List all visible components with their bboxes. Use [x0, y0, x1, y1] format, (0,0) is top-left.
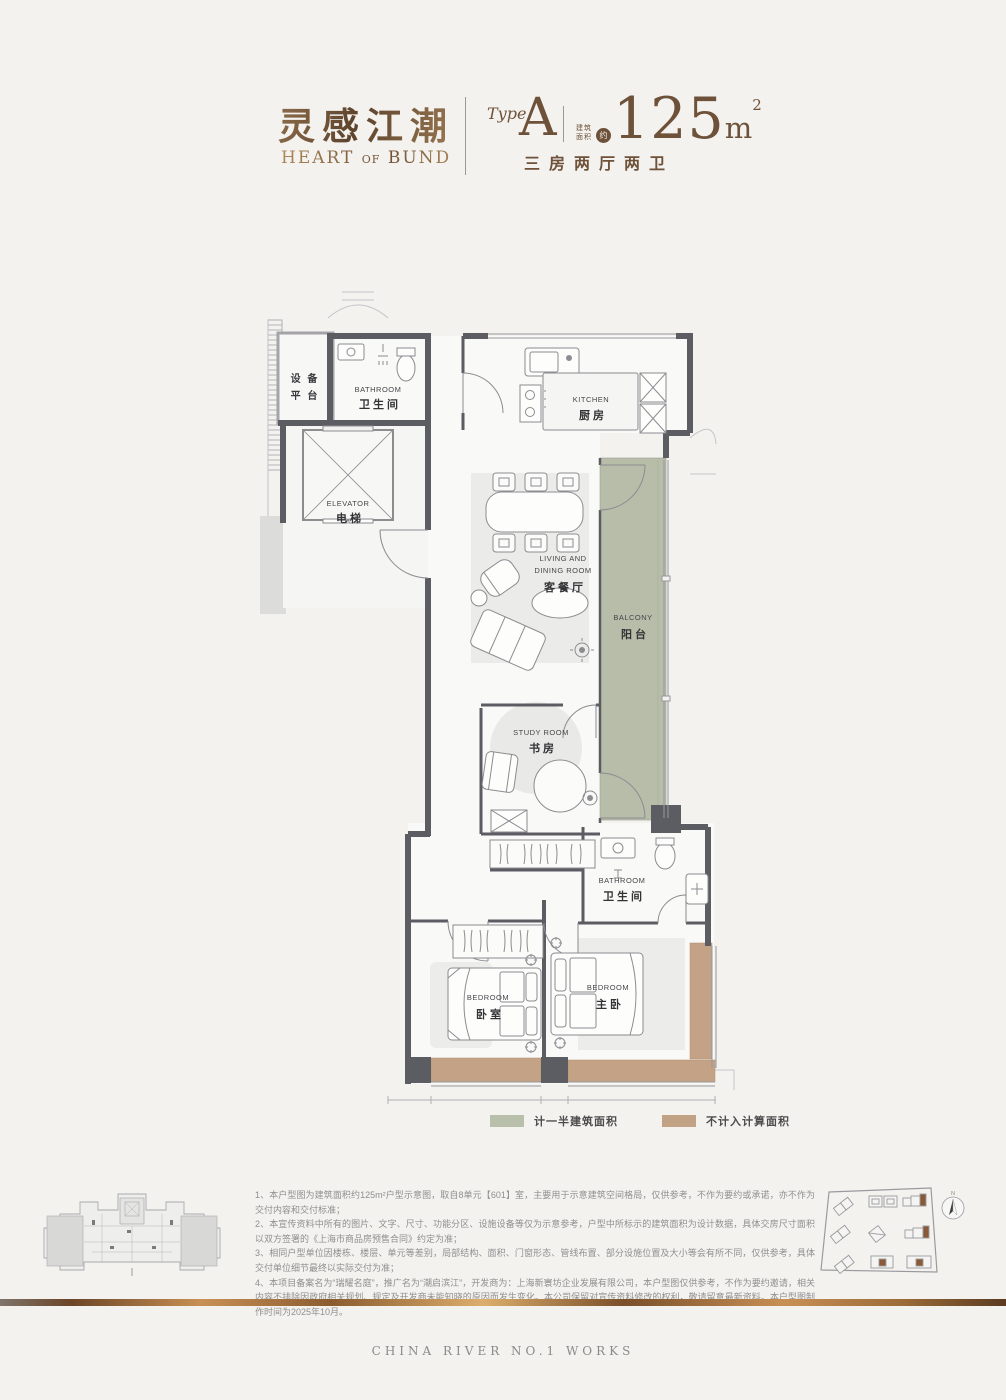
bronze-divider-strip [0, 1299, 1006, 1306]
label-kitchen-zh: 厨房 [579, 408, 607, 422]
legend-swatch-green [490, 1115, 524, 1127]
key-plan [32, 1180, 232, 1286]
area-divider [563, 106, 564, 142]
label-bathroom2-zh: 卫生间 [603, 889, 645, 903]
area-prefix: 建筑面积 [576, 124, 592, 142]
label-bathroom1-en: BATHROOM [355, 385, 402, 394]
compass-north-label: N [951, 1191, 955, 1197]
label-living-en1: LIVING AND [539, 554, 586, 563]
legend-swatch-tan [662, 1115, 696, 1127]
label-study-en: STUDY ROOM [513, 728, 569, 737]
header: 灵感江潮 HEART OF BUND Type A 建筑面积 约 125m2 三… [0, 0, 1006, 220]
site-plan: N [813, 1184, 973, 1290]
footer-slogan: CHINA RIVER NO.1 WORKS [0, 1344, 1006, 1358]
legend: 计一半建筑面积 不计入计算面积 [490, 1113, 790, 1129]
layout-spec: 三房两厅两卫 [524, 150, 674, 174]
label-bathroom1-zh: 卫生间 [359, 397, 401, 411]
floor-plan: 设 备 平 台 BATHROOM 卫生间 KITCHEN 厨房 ELEVATOR… [238, 278, 768, 1118]
label-living-zh: 客餐厅 [543, 580, 586, 594]
label-kitchen-en: KITCHEN [573, 395, 609, 404]
page-subtitle: HEART OF BUND [281, 148, 451, 168]
label-master-zh: 主卧 [596, 997, 624, 1011]
label-elevator-zh: 电梯 [336, 511, 364, 525]
site-buildings [830, 1194, 931, 1273]
header-divider [465, 97, 466, 175]
note-1: 1、本户型图为建筑面积约125m²户型示意图，取自8单元【601】室，主要用于示… [255, 1188, 815, 1217]
area-value: 125m2 [613, 86, 762, 152]
legend-half-area: 计一半建筑面积 [490, 1113, 618, 1129]
note-2: 2、本宣传资料中所有的图片、文字、尺寸、功能分区、设施设备等仅为示意参考，户型中… [255, 1217, 815, 1246]
label-elevator-en: ELEVATOR [327, 499, 370, 508]
type-value: A [519, 88, 557, 148]
note-4: 4、本项目备案名为“瑞耀名庭”，推广名为“潮启滨江”，开发商为：上海新寰坊企业发… [255, 1276, 815, 1320]
label-study-zh: 书房 [529, 741, 557, 755]
legend-excluded-area: 不计入计算面积 [662, 1113, 790, 1129]
floorplan-poster-page: 灵感江潮 HEART OF BUND Type A 建筑面积 约 125m2 三… [0, 0, 1006, 1400]
label-balcony-en: BALCONY [613, 613, 652, 622]
page-title: 灵感江潮 [278, 96, 454, 150]
dimension-line [388, 1096, 716, 1104]
label-bedroom-en: BEDROOM [467, 993, 509, 1002]
area-approx-badge: 约 [596, 128, 611, 143]
label-bedroom-zh: 卧室 [476, 1007, 504, 1021]
label-master-en: BEDROOM [587, 983, 629, 992]
svg-text:DINING ROOM: DINING ROOM [534, 566, 591, 575]
label-equipment: 设 备 [291, 372, 320, 385]
compass-icon: N [942, 1191, 964, 1219]
note-3: 3、相同户型单位因楼栋、楼层、单元等差别，局部结构、面积、门窗形态、管线布置、部… [255, 1246, 815, 1275]
label-balcony-zh: 阳台 [621, 627, 649, 641]
svg-text:平 台: 平 台 [291, 389, 320, 402]
label-bathroom2-en: BATHROOM [599, 876, 646, 885]
